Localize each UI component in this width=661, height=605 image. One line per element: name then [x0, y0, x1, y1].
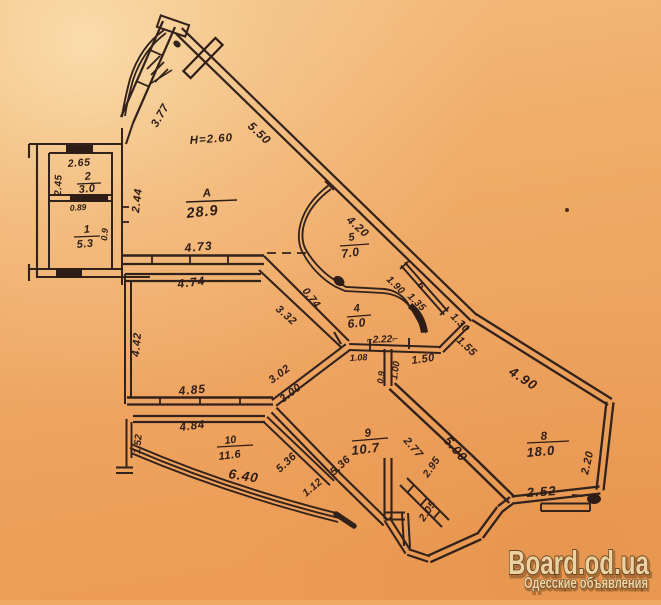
svg-text:7.0: 7.0 [340, 245, 360, 261]
svg-text:1: 1 [83, 224, 90, 236]
svg-text:4: 4 [352, 302, 360, 315]
svg-text:1.08: 1.08 [350, 352, 368, 363]
svg-text:4.73: 4.73 [183, 239, 213, 255]
svg-text:⌐2.22⌐: ⌐2.22⌐ [367, 334, 399, 346]
svg-text:10: 10 [224, 434, 237, 447]
svg-text:4.85: 4.85 [177, 382, 206, 398]
svg-text:18.0: 18.0 [526, 443, 556, 460]
svg-text:2.52: 2.52 [525, 483, 557, 500]
svg-text:2.65: 2.65 [66, 156, 91, 170]
svg-text:2: 2 [83, 171, 91, 184]
svg-text:А: А [201, 187, 212, 200]
svg-text:0.9: 0.9 [375, 370, 387, 384]
svg-text:0.9: 0.9 [99, 228, 110, 241]
svg-text:5.3: 5.3 [76, 238, 94, 251]
svg-text:6.0: 6.0 [347, 315, 367, 331]
svg-text:3.0: 3.0 [78, 183, 96, 196]
svg-text:0.89: 0.89 [69, 202, 86, 213]
svg-text:4.42: 4.42 [130, 332, 144, 359]
svg-text:1.52: 1.52 [132, 433, 145, 454]
svg-text:2.45: 2.45 [53, 174, 65, 197]
svg-text:Одесские объявления: Одесские объявления [524, 575, 648, 592]
